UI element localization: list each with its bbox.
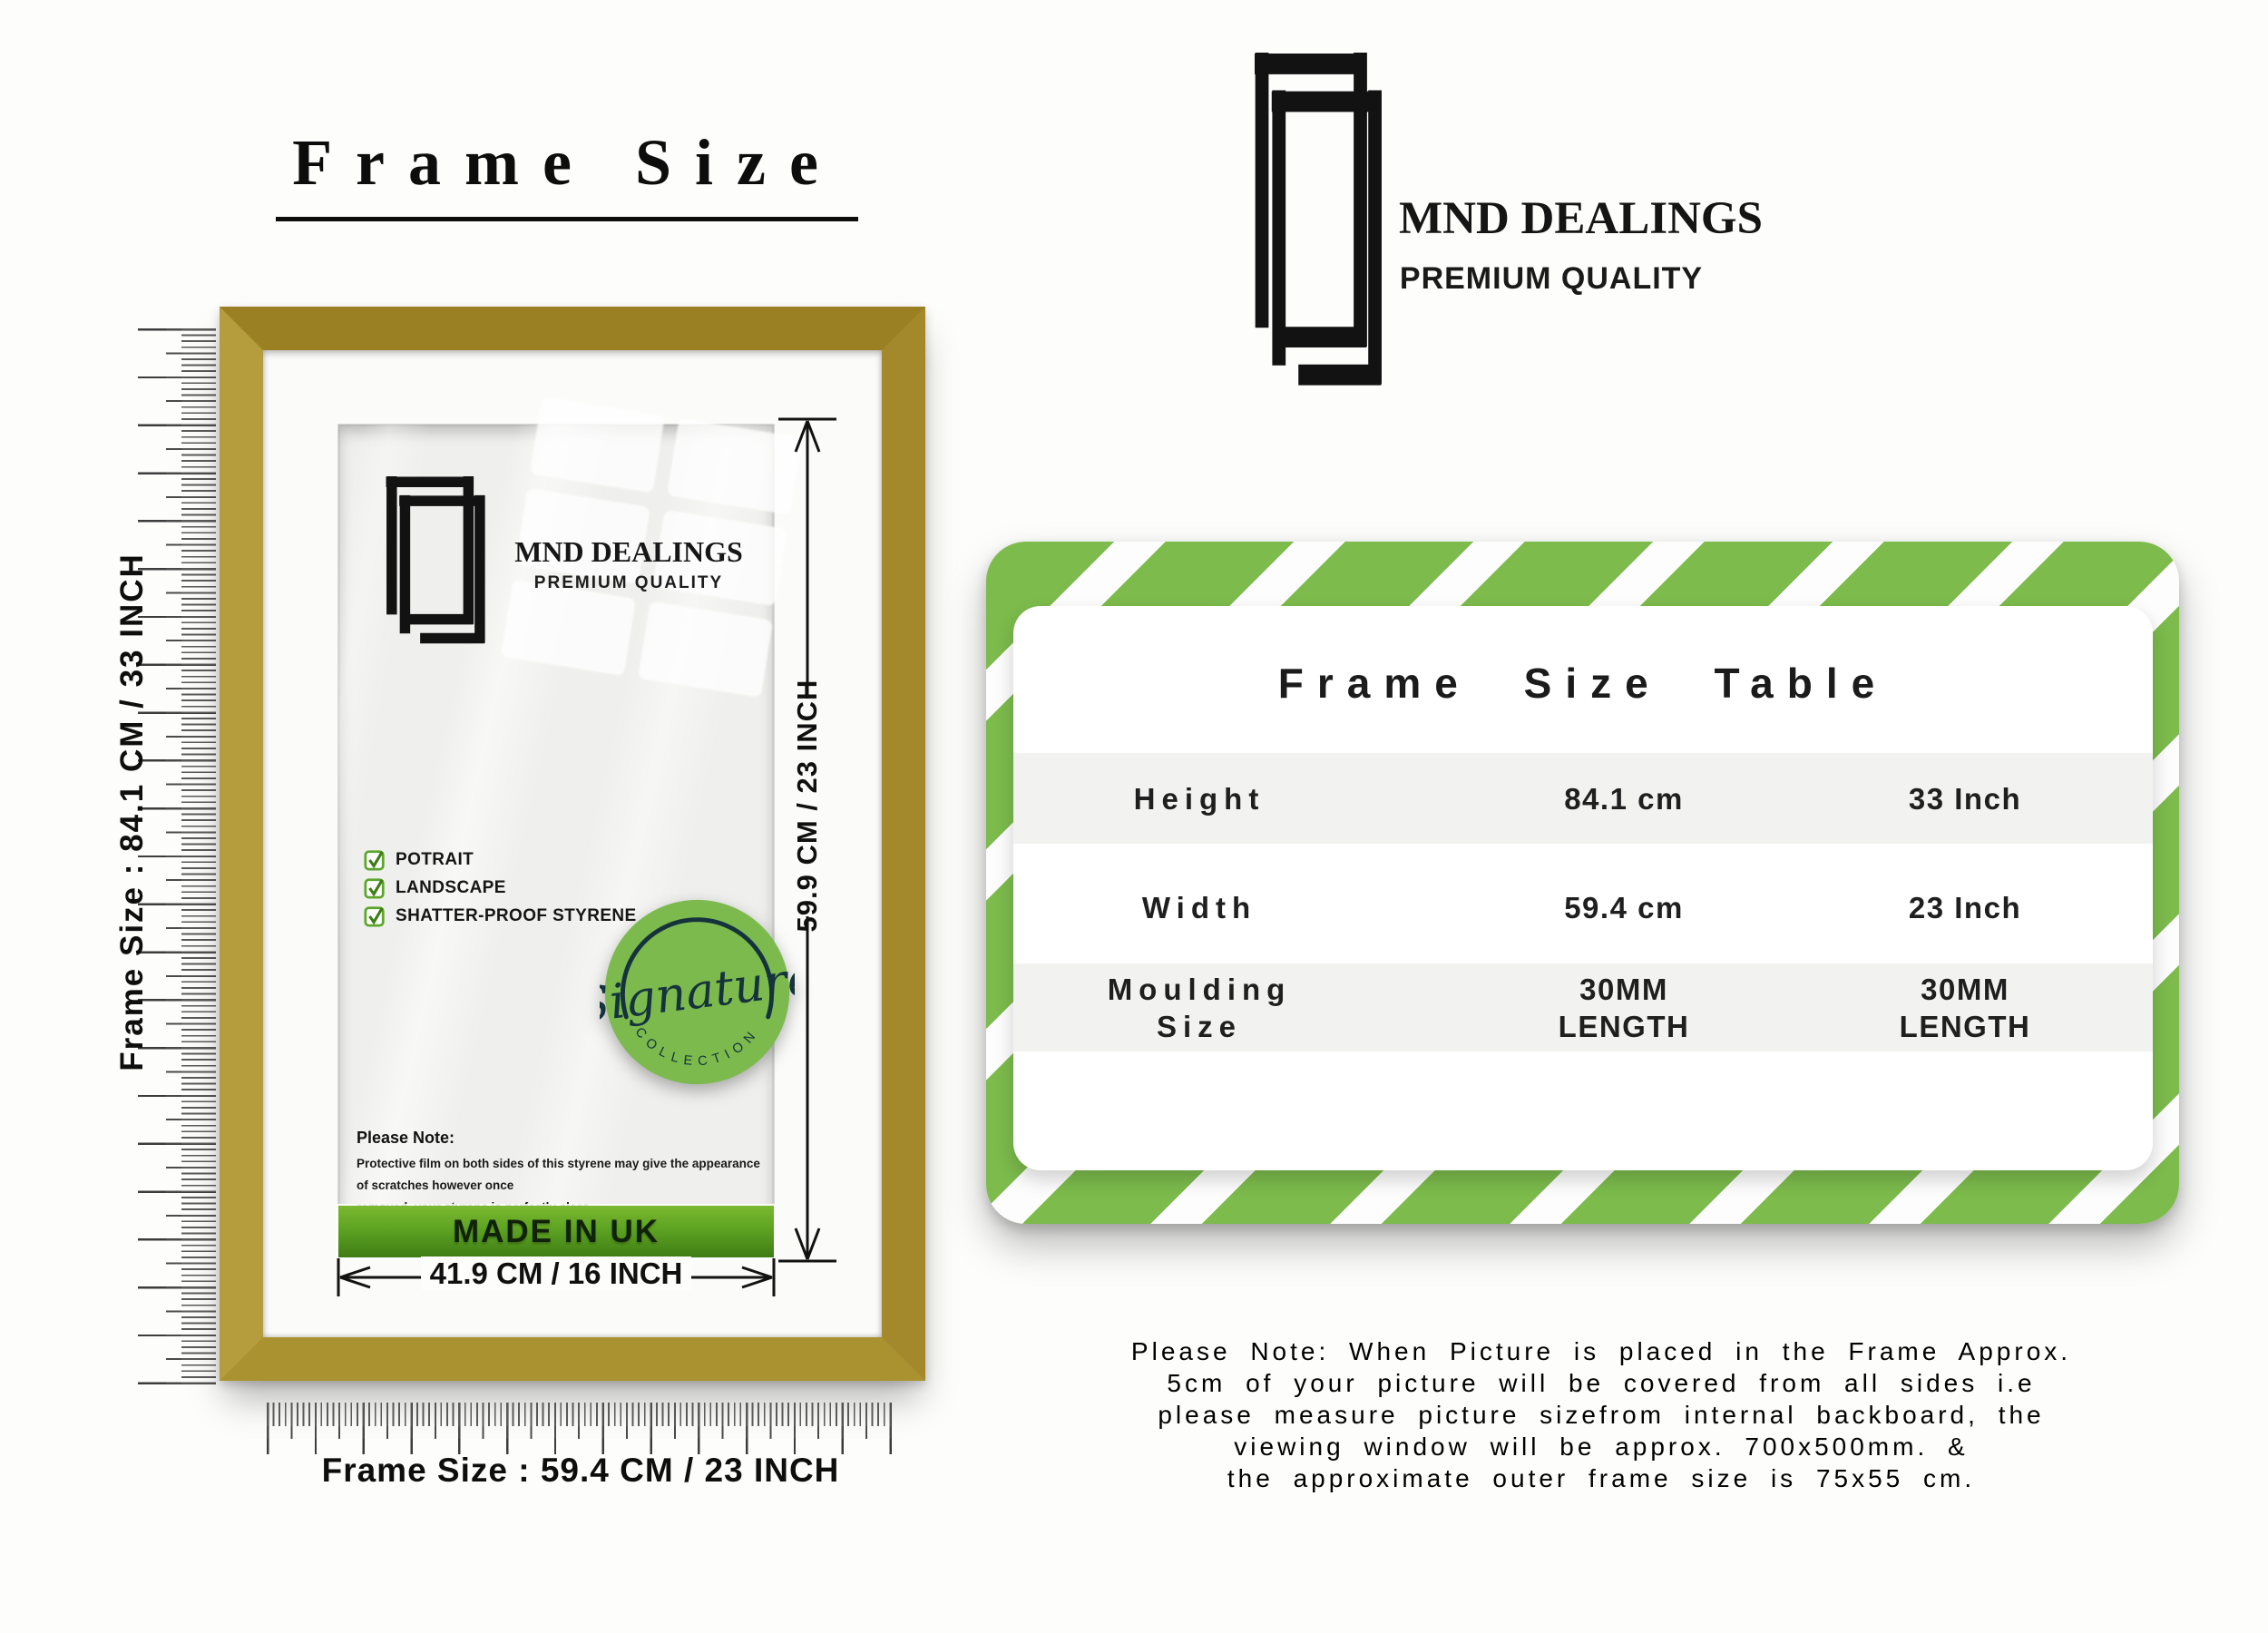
width-dimension-label: 41.9 CM / 16 INCH	[338, 1257, 774, 1291]
feature-label: LANDSCAPE	[396, 878, 506, 898]
table-row-height: Height 84.1 cm 33 Inch	[1013, 753, 2153, 844]
row-inch-value: 33 Inch	[1838, 780, 2092, 817]
frame-note-title: Please Note:	[357, 1129, 761, 1148]
footnote-text: Please Note: When Picture is placed in t…	[1002, 1335, 2200, 1494]
row-inch-value: 23 Inch	[1838, 889, 2092, 926]
signature-collection-badge: Signature COLLECTION	[600, 895, 795, 1090]
feature-label: POTRAIT	[396, 850, 474, 870]
height-dimension-label: 59.9 CM / 23 INCH	[791, 680, 824, 933]
row-label: Height	[1041, 780, 1358, 817]
feature-list: POTRAIT LANDSCAPE SH	[364, 846, 637, 930]
size-table-title: Frame Size Table	[1013, 659, 2153, 708]
horizontal-ruler-fine-ticks	[267, 1403, 894, 1426]
size-table-card: Frame Size Table Height 84.1 cm 33 Inch …	[1013, 606, 2153, 1170]
checkbox-checked-icon	[364, 849, 386, 871]
frame-insert-brand-name: MND DEALINGS	[493, 535, 765, 569]
mnd-dealings-logo-icon-large	[1255, 53, 1391, 396]
row-label: Moulding Size	[1041, 971, 1358, 1045]
row-inch-value: 30MM LENGTH	[1838, 971, 2092, 1045]
checkbox-checked-icon	[364, 877, 386, 899]
page-title: Frame Size	[276, 125, 858, 221]
feature-item: LANDSCAPE	[364, 874, 637, 902]
vertical-ruler-fine-ticks	[181, 328, 216, 1384]
page-title-wrap: Frame Size	[218, 125, 916, 221]
table-row-moulding-size: Moulding Size 30MM LENGTH 30MM LENGTH	[1013, 963, 2153, 1051]
checkbox-checked-icon	[364, 905, 386, 927]
vertical-ruler-label: Frame Size : 84.1 CM / 33 INCH	[114, 552, 151, 1071]
header-brand-name: MND DEALINGS	[1399, 192, 1704, 245]
row-cm-value: 59.4 cm	[1492, 889, 1755, 926]
frame-insert-brand-tagline: PREMIUM QUALITY	[493, 573, 765, 593]
frame-window-styrene: MND DEALINGS PREMIUM QUALITY POTRAIT	[338, 425, 774, 1257]
row-label: Width	[1041, 889, 1358, 926]
feature-item: SHATTER-PROOF STYRENE	[364, 902, 637, 930]
header-brand-tagline: PREMIUM QUALITY	[1399, 261, 1704, 297]
feature-item: POTRAIT	[364, 846, 637, 874]
product-infographic: Frame Size Frame Size : 84.1 CM / 33 INC…	[0, 0, 2268, 1633]
horizontal-ruler-label: Frame Size : 59.4 CM / 23 INCH	[236, 1452, 925, 1490]
table-row-width: Width 59.4 cm 23 Inch	[1013, 862, 2153, 953]
made-in-uk-banner: MADE IN UK	[338, 1206, 774, 1257]
row-cm-value: 30MM LENGTH	[1492, 971, 1755, 1045]
row-cm-value: 84.1 cm	[1492, 780, 1755, 817]
mnd-dealings-logo-icon	[386, 476, 493, 649]
